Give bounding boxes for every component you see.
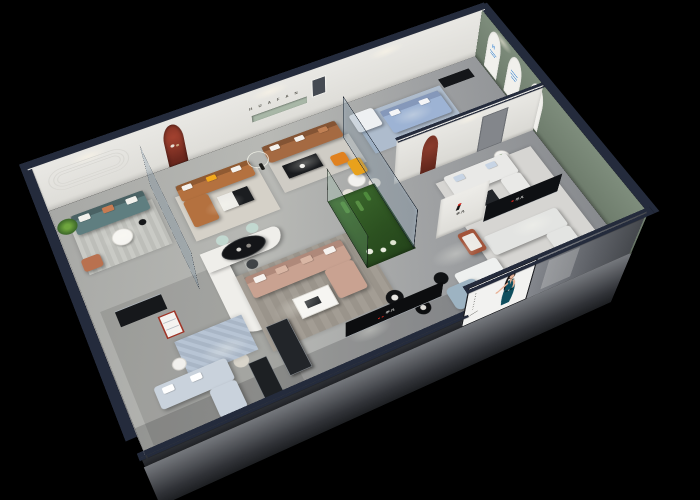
blush-sectional-main	[244, 239, 352, 299]
niche-vase	[176, 144, 180, 147]
shelf-line	[163, 318, 176, 324]
hydrangea	[389, 239, 397, 246]
showroom-3d-world: H U A F A N H	[49, 56, 629, 465]
black-sideboard	[115, 293, 168, 327]
rug-center	[236, 229, 399, 352]
white-coffee-table	[292, 284, 339, 319]
red-accent-dot	[382, 316, 384, 318]
bowl	[225, 340, 232, 347]
pillow-blue	[453, 173, 466, 182]
poster-vertical-marks	[472, 293, 476, 309]
red-display-shelf	[158, 310, 185, 339]
hydrangea	[379, 247, 387, 253]
pillow	[275, 265, 289, 275]
white-side-table	[170, 355, 189, 372]
decor-bottle	[236, 247, 242, 252]
showroom-render: H U A F A N H	[0, 0, 700, 500]
pillow	[190, 372, 204, 382]
blush-backrest	[244, 239, 344, 284]
black-oval-dining-table	[190, 326, 252, 368]
mint-chair	[244, 221, 260, 234]
light-pool	[427, 235, 486, 273]
pillow	[300, 255, 314, 265]
pillow-blue	[485, 161, 498, 169]
pillow	[323, 246, 337, 256]
blush-sectional-chaise	[324, 259, 369, 299]
black-oval-table	[218, 231, 270, 266]
cream-chair	[231, 351, 251, 369]
reception-logo-text: 华凡	[385, 307, 395, 315]
light-pool	[196, 330, 253, 370]
pillow	[162, 384, 176, 395]
framed-art	[311, 75, 326, 98]
red-accent-dot	[378, 317, 380, 319]
curved-partition-b	[200, 225, 287, 274]
chair-cushion	[461, 233, 482, 252]
table-tray	[304, 296, 321, 309]
niche-vase	[170, 144, 175, 148]
display-bench	[266, 318, 313, 376]
arch-panel-logo: H	[492, 43, 495, 52]
shelf-line	[166, 325, 179, 331]
pillow	[253, 274, 267, 284]
cactus	[363, 191, 372, 201]
poster-signature	[469, 310, 478, 316]
cactus	[355, 200, 365, 211]
light-pool	[269, 285, 330, 326]
bowl	[210, 347, 217, 354]
rug-blue-pattern	[174, 315, 258, 379]
dark-chair	[245, 258, 260, 271]
curved-partition-a	[201, 250, 262, 338]
pale-blue-sofa-main	[153, 358, 235, 411]
red-lounge-chair	[457, 228, 488, 256]
black-console	[438, 68, 475, 88]
decor-bottle	[246, 243, 252, 248]
cream-chair	[194, 368, 215, 387]
red-arch-niche	[161, 121, 189, 167]
rust-armchair	[80, 253, 104, 272]
mint-chair	[214, 234, 230, 248]
